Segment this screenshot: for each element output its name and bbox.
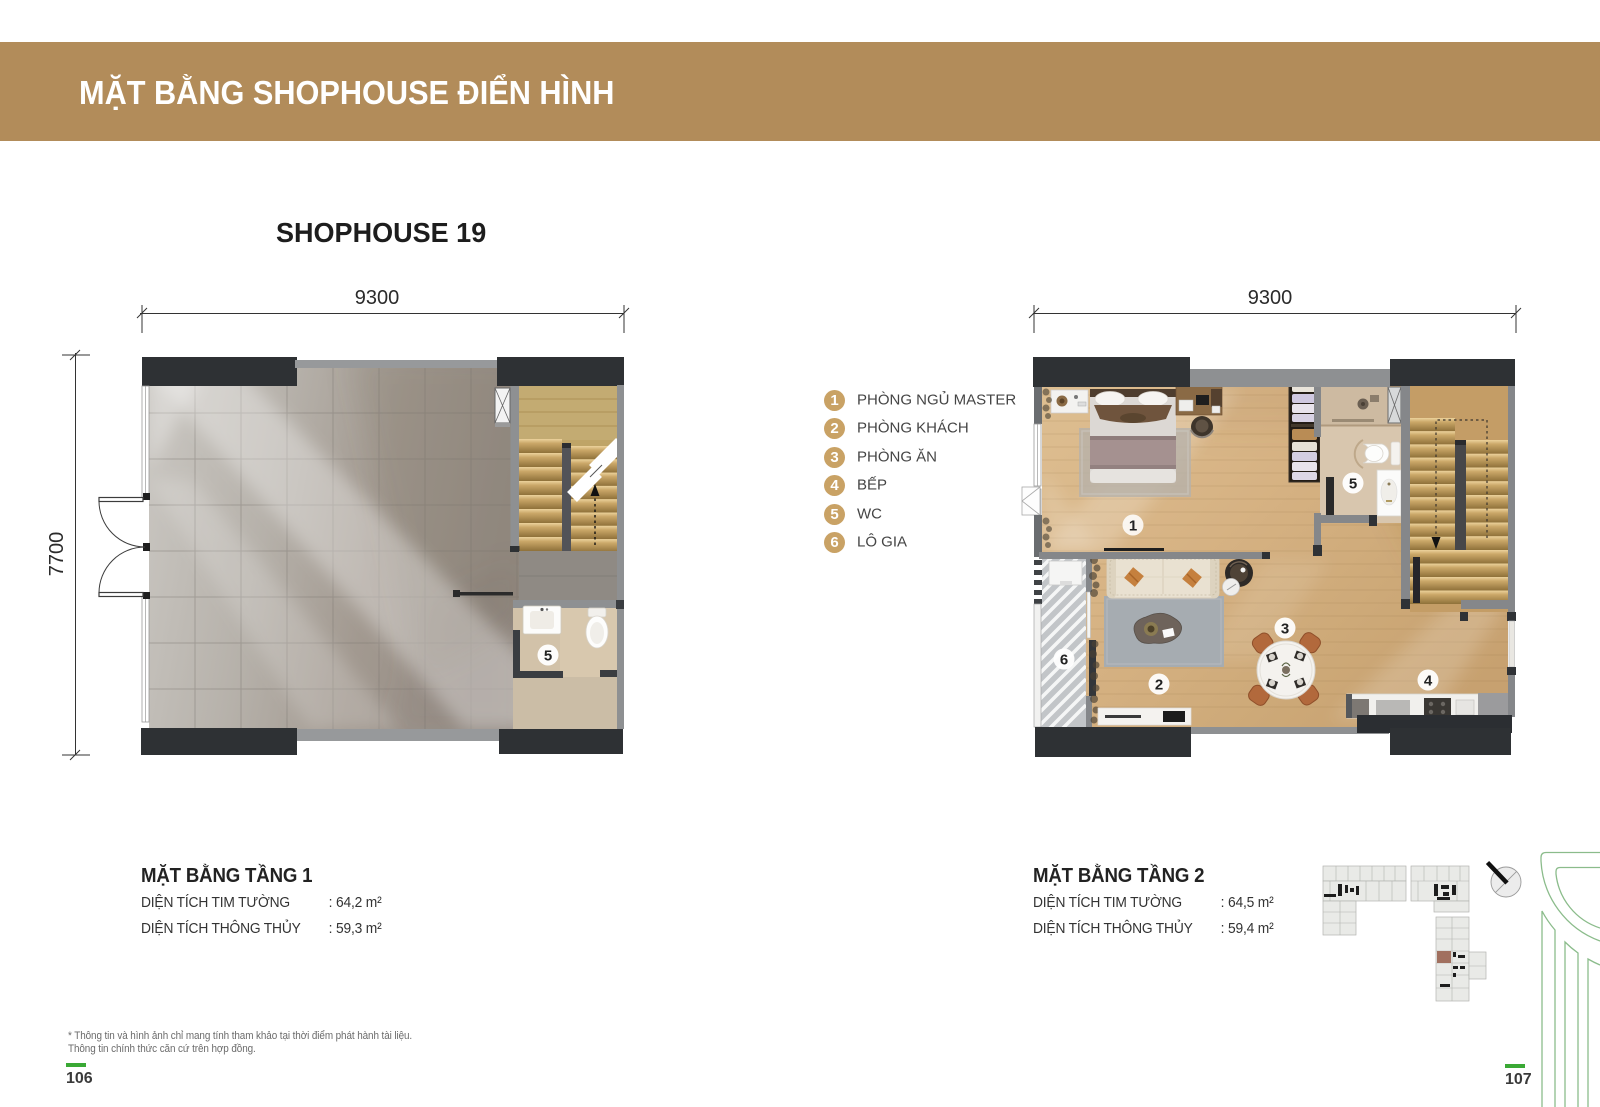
svg-text:9300: 9300 bbox=[1248, 287, 1293, 309]
svg-text:9300: 9300 bbox=[355, 287, 400, 309]
svg-text:2: 2 bbox=[1155, 677, 1163, 694]
svg-text:5: 5 bbox=[544, 648, 552, 665]
svg-text:3: 3 bbox=[1281, 621, 1289, 638]
svg-text:1: 1 bbox=[1129, 518, 1137, 535]
svg-text:7700: 7700 bbox=[46, 532, 68, 577]
svg-text:4: 4 bbox=[1424, 673, 1433, 690]
svg-text:6: 6 bbox=[1060, 652, 1068, 669]
svg-text:5: 5 bbox=[1349, 476, 1357, 493]
